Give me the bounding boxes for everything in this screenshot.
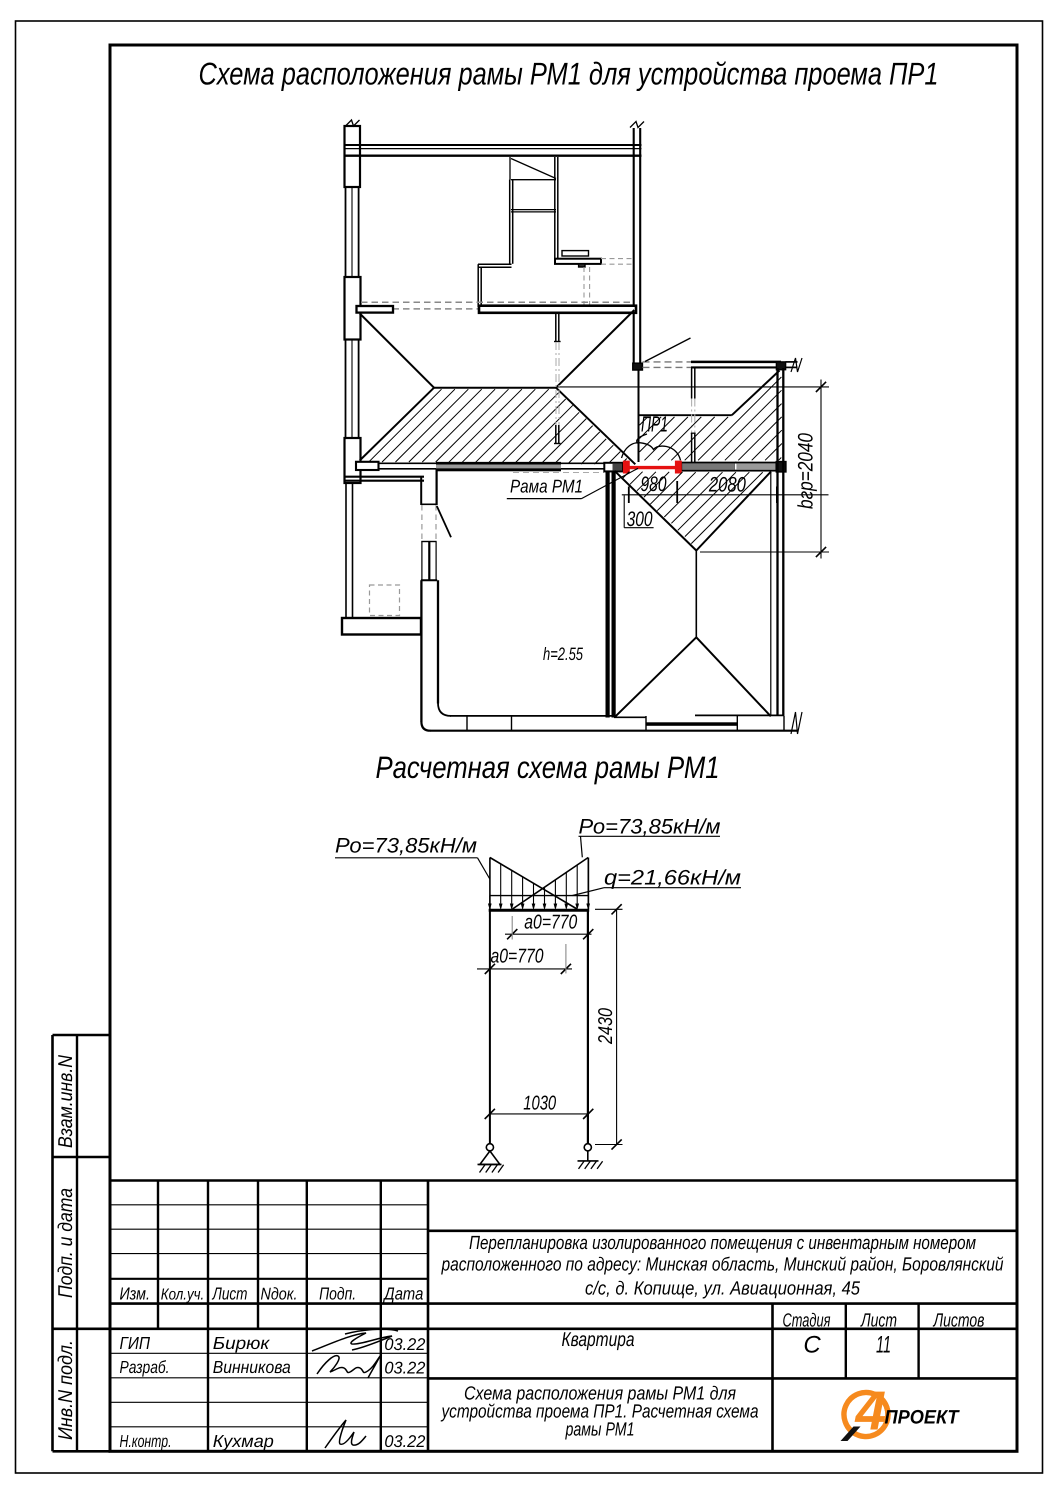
svg-text:Подп. и дата: Подп. и дата [55,1188,77,1298]
svg-text:Квартира: Квартира [562,1329,635,1351]
svg-text:Стадия: Стадия [783,1311,831,1332]
svg-text:ГИП: ГИП [120,1333,151,1353]
svg-text:Винникова: Винникова [213,1357,291,1377]
svg-text:11: 11 [876,1332,891,1359]
svg-text:4: 4 [855,1380,887,1442]
svg-text:расположенного по адресу: Минс: расположенного по адресу: Минская област… [441,1255,1004,1276]
svg-text:а0=770: а0=770 [491,946,544,968]
svg-text:Схема расположения рамы РМ1 дл: Схема расположения рамы РМ1 для устройст… [199,56,939,92]
svg-text:03.22: 03.22 [384,1359,426,1378]
svg-text:1030: 1030 [523,1092,556,1114]
svg-text:2430: 2430 [595,1008,617,1045]
svg-text:Ро=73,85кН/м: Ро=73,85кН/м [579,816,721,839]
svg-text:2080: 2080 [708,474,746,497]
svg-text:Nдок.: Nдок. [261,1284,298,1303]
svg-text:03.22: 03.22 [384,1335,426,1354]
svg-text:Рама РМ1: Рама РМ1 [510,476,583,497]
svg-text:Лист: Лист [860,1311,897,1332]
svg-text:Листов: Листов [932,1311,985,1332]
svg-text:Н.контр.: Н.контр. [120,1431,172,1451]
svg-text:Бирюк: Бирюк [213,1333,270,1353]
svg-text:а0=770: а0=770 [524,912,577,934]
svg-text:980: 980 [641,473,667,496]
svg-text:bгр=2040: bгр=2040 [795,433,818,509]
svg-text:300: 300 [627,508,653,531]
svg-text:Расчетная схема рамы РМ1: Расчетная схема рамы РМ1 [376,750,720,785]
svg-text:03.22: 03.22 [384,1432,426,1451]
svg-text:Ро=73,85кН/м: Ро=73,85кН/м [335,835,477,858]
svg-text:с/с, д. Копище, ул. Авиационна: с/с, д. Копище, ул. Авиационная, 45 [585,1279,860,1300]
svg-text:Перепланировка изолированного: Перепланировка изолированного помещения … [469,1233,976,1254]
svg-text:Кол.уч.: Кол.уч. [161,1286,205,1303]
svg-text:С: С [803,1332,821,1359]
svg-text:q=21,66кН/м: q=21,66кН/м [604,867,741,890]
svg-text:ПРОЕКТ: ПРОЕКТ [885,1407,961,1429]
svg-text:Инв.N подл.: Инв.N подл. [55,1340,77,1440]
svg-text:Взам.инв.N: Взам.инв.N [55,1055,77,1148]
svg-text:Лист: Лист [212,1283,248,1303]
svg-text:Кухмар: Кухмар [213,1431,274,1451]
svg-text:Разраб.: Разраб. [120,1357,170,1377]
svg-text:Изм.: Изм. [119,1283,150,1303]
svg-text:h=2.55: h=2.55 [543,644,584,664]
svg-text:рамы РМ1: рамы РМ1 [565,1420,635,1441]
svg-text:Подп.: Подп. [319,1283,356,1303]
svg-text:Дата: Дата [383,1283,424,1303]
